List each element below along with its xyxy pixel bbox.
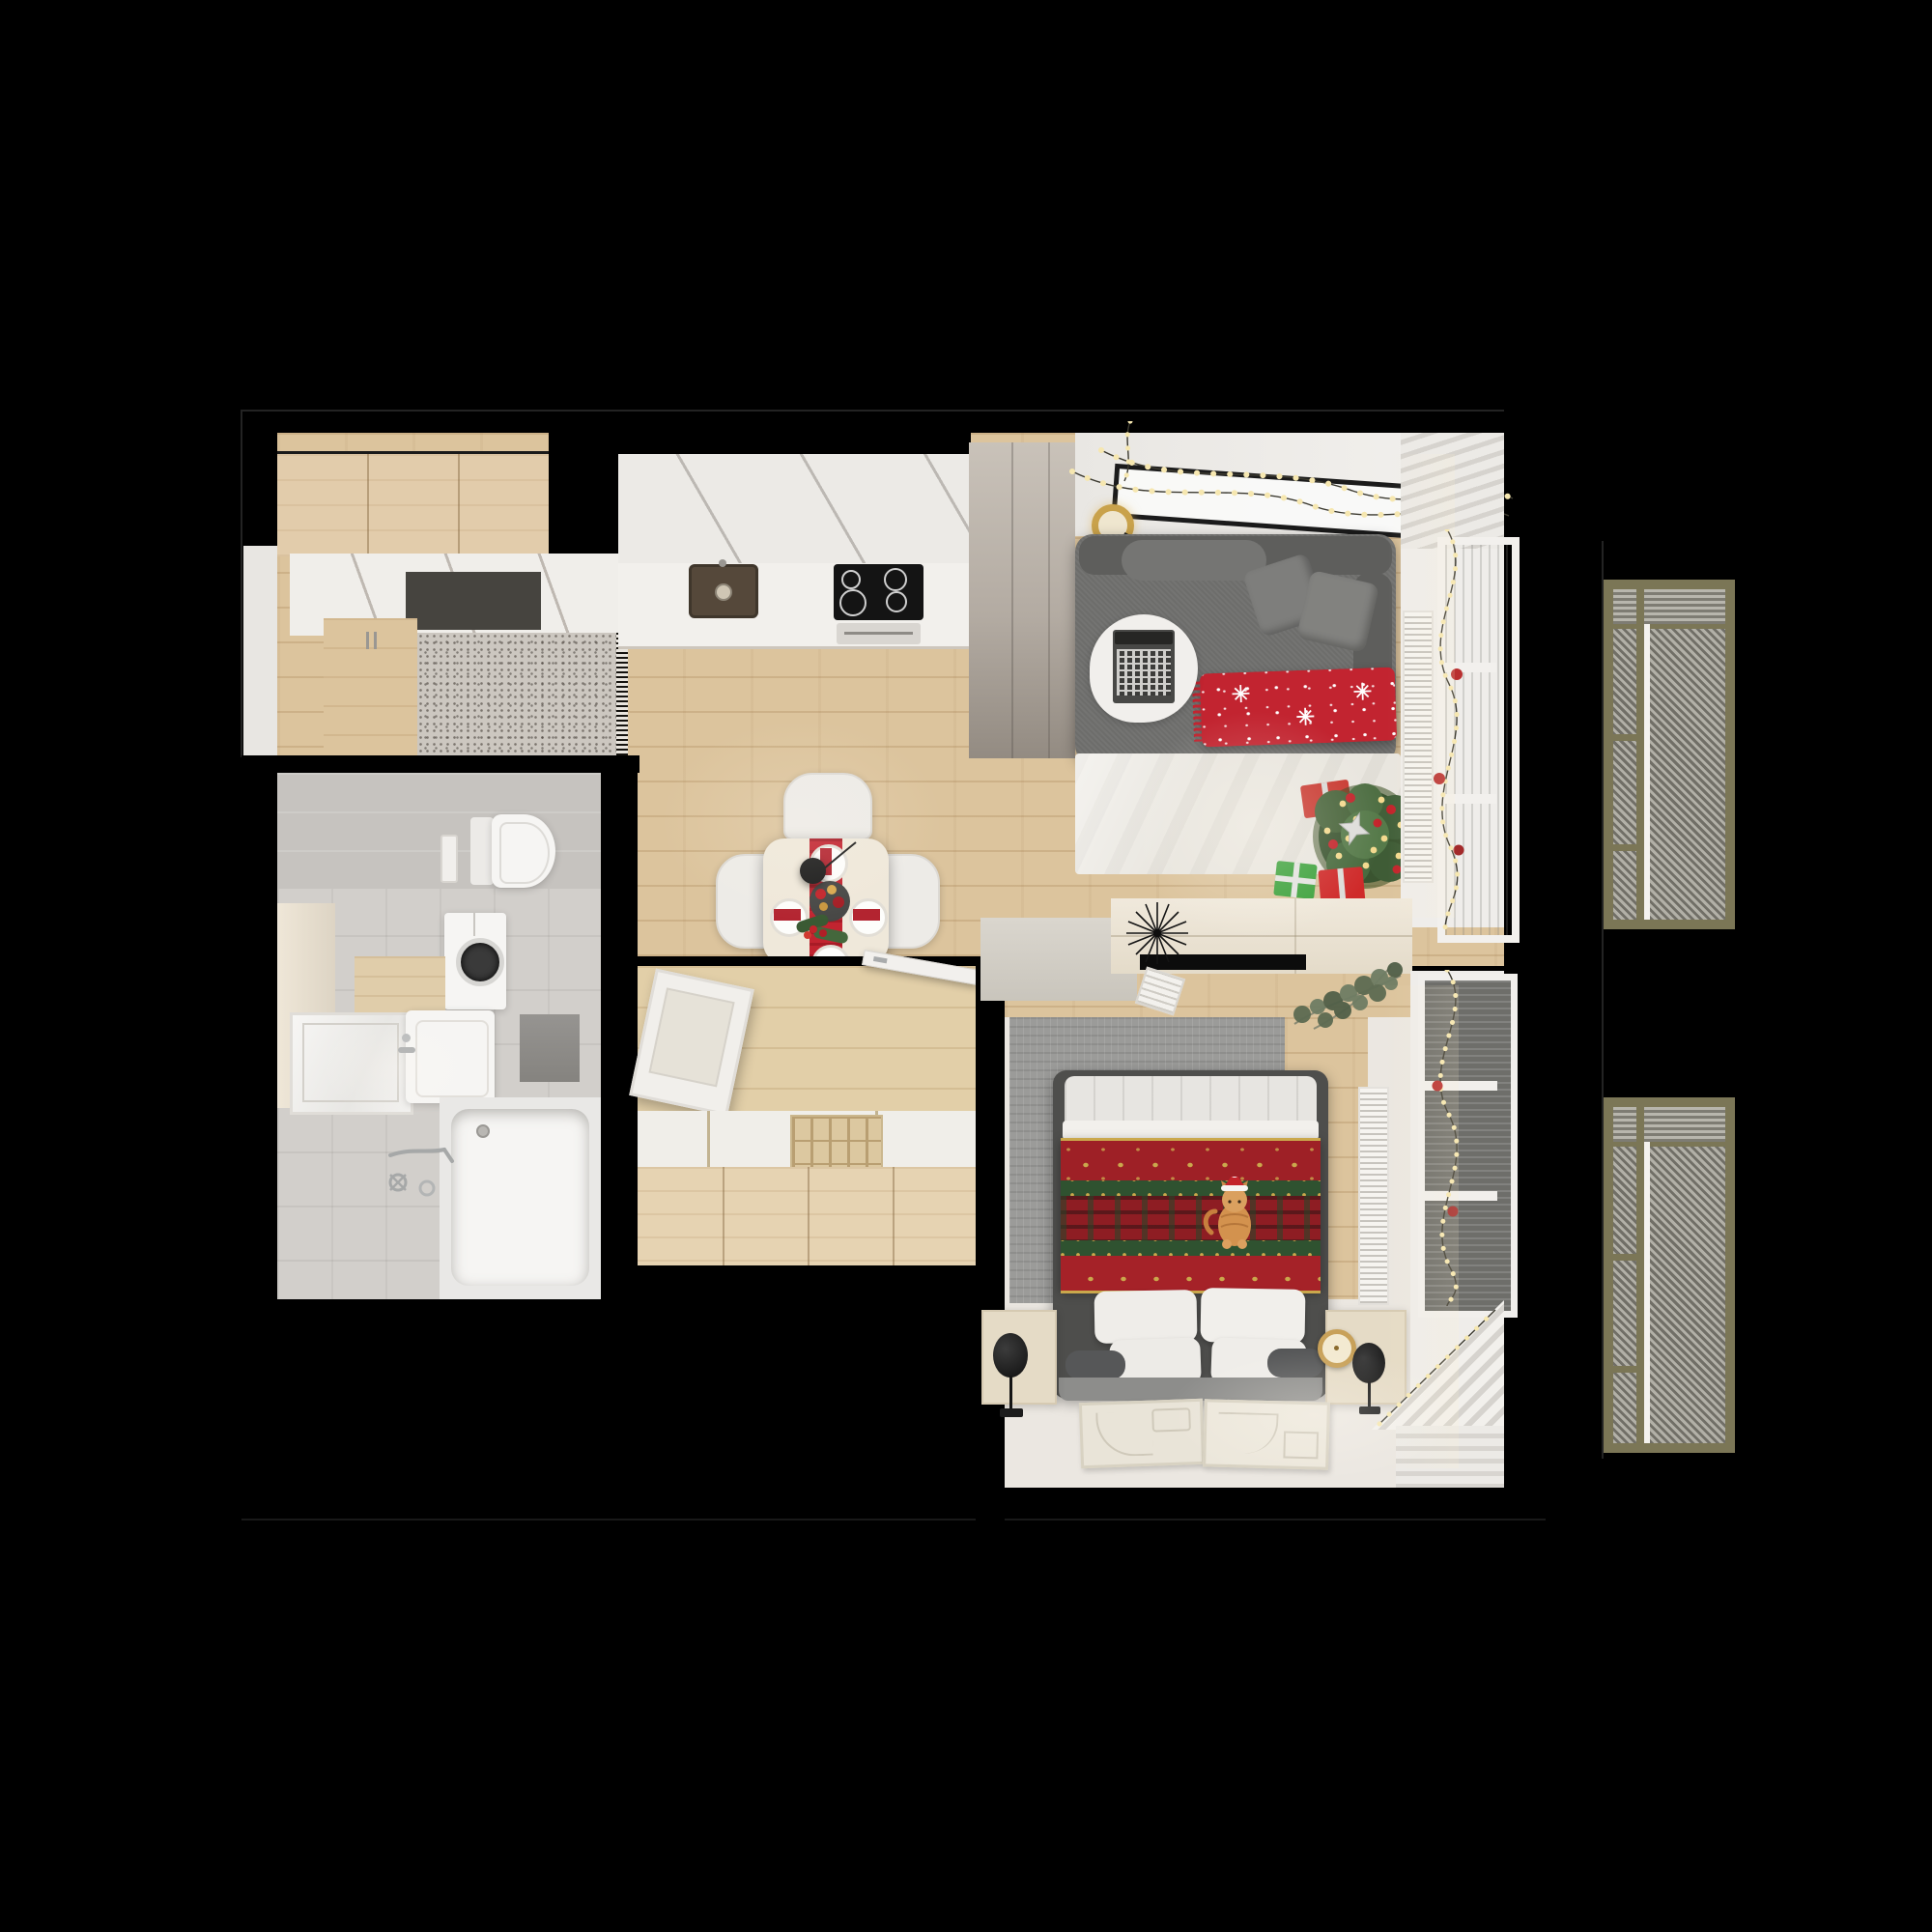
wall-outline-top <box>241 410 1504 412</box>
art-relief-line <box>1283 1431 1319 1459</box>
lamp-left-base <box>1000 1408 1023 1417</box>
eucalyptus-plant <box>1275 947 1420 1043</box>
kitchen-upper-cabinets <box>618 454 969 563</box>
panel-top-band <box>1613 1107 1725 1147</box>
towel-panel <box>520 1014 580 1082</box>
art-relief-line <box>1151 1407 1191 1432</box>
christmas-bedspread <box>1061 1138 1321 1291</box>
napkin-west <box>774 909 801 921</box>
bench-organizer-open <box>790 1115 883 1169</box>
burner <box>886 591 907 612</box>
washer-seam <box>473 913 475 936</box>
storage-bench-front <box>638 1167 976 1265</box>
panel-top-band <box>1613 589 1725 629</box>
wardrobe-door-seam <box>367 454 369 556</box>
panel-crossbar <box>1613 844 1644 851</box>
panel-crossbar <box>1613 734 1644 741</box>
storage-bench-top <box>638 1111 976 1167</box>
sink-drain <box>715 583 732 601</box>
laptop <box>1113 630 1175 703</box>
washer-drum <box>456 938 504 986</box>
apartment-floor-plan <box>0 0 1932 1932</box>
table-lamp-left <box>993 1333 1028 1378</box>
vanity-handle <box>402 1034 411 1042</box>
ornament-gold <box>819 902 828 911</box>
bench-front-seam <box>808 1167 810 1265</box>
burner <box>841 570 861 589</box>
laptop-keyboard <box>1117 649 1171 696</box>
cat-with-santa-hat <box>1198 1177 1265 1254</box>
bench-front-seam <box>723 1167 724 1265</box>
art-relief-line <box>1095 1411 1153 1458</box>
kitchen-tall-cabinet <box>969 442 1075 758</box>
bolster-pillow <box>1065 1350 1125 1379</box>
panel-mesh <box>1613 1107 1725 1443</box>
sink-faucet <box>719 559 726 567</box>
napkin-east <box>853 909 880 921</box>
vanity-faucet <box>398 1047 415 1053</box>
bathroom-tile-wall <box>277 773 601 889</box>
wall-bathroom-dressing <box>601 773 638 1299</box>
tall-cabinet-seam <box>1048 442 1050 758</box>
toilet-bowl <box>492 814 555 888</box>
wall-outline-bottom <box>241 1519 1546 1520</box>
ornament-red <box>833 896 844 908</box>
wall-entry-bathroom <box>241 755 639 773</box>
dining-chair-north <box>783 773 872 840</box>
tall-cabinet-seam <box>1011 442 1013 758</box>
bedspread-band-green <box>1061 1180 1321 1196</box>
bottom-curtain-band <box>1396 1426 1504 1488</box>
entry-wardrobe <box>277 451 549 556</box>
bench-front-seam <box>893 1167 895 1265</box>
kitchen-sink <box>689 564 758 618</box>
bedspread-band-snowflake-red2 <box>1061 1256 1321 1293</box>
panel-column-bar <box>1636 589 1644 920</box>
toilet-tank <box>470 817 494 885</box>
oven-front <box>837 623 921 644</box>
ornament-red <box>815 889 826 899</box>
entry-shoe-cabinet <box>324 618 417 755</box>
spiky-decor-star <box>1119 895 1196 972</box>
cabinet-mirror <box>648 987 734 1087</box>
floor-art-panel <box>1079 1399 1205 1468</box>
toilet-seat-line <box>499 822 550 884</box>
balcony-panel-lower <box>1604 1097 1735 1453</box>
panel-column-bar <box>1636 1107 1644 1443</box>
wardrobe-door-seam <box>458 454 460 556</box>
wall-gap-kitchen-top <box>618 433 971 456</box>
living-window-garland <box>1412 529 1505 931</box>
wall-outline-left <box>241 410 242 757</box>
vanity-basin <box>415 1020 489 1097</box>
panel-crossbar <box>1613 1366 1644 1373</box>
door-handle <box>873 956 888 963</box>
alarm-clock <box>1318 1329 1356 1368</box>
bath-wall-faucet <box>377 1111 483 1217</box>
panel-white-gap <box>1644 624 1650 920</box>
burner <box>884 568 907 591</box>
laptop-screen <box>1115 632 1173 644</box>
bedspread-band-green <box>1061 1240 1321 1256</box>
panel-white-gap <box>1644 1142 1650 1443</box>
floor-art-panel <box>1203 1399 1330 1469</box>
holly-berries <box>810 925 817 933</box>
bedroom-window-garland <box>1408 970 1505 1308</box>
bench-seam <box>707 1111 710 1167</box>
bed-pillow <box>1201 1288 1306 1344</box>
red-christmas-throw <box>1200 667 1398 747</box>
bedspread-band-snowflake-red <box>1061 1138 1321 1183</box>
lamp-left-stem <box>1009 1376 1012 1410</box>
entry-rug <box>417 633 616 755</box>
cabinet-handle <box>374 632 377 649</box>
gift-box-green <box>1273 861 1318 899</box>
wall-dressing-bedroom <box>976 956 1005 1531</box>
throw-snowflakes <box>1200 667 1398 747</box>
headboard <box>1059 1378 1322 1401</box>
bedroom-radiator <box>1358 1087 1389 1305</box>
corner-curtain-lights <box>1372 1300 1504 1430</box>
balcony-panel-upper <box>1604 580 1735 929</box>
burner <box>839 589 867 616</box>
pendant-lamp <box>800 858 826 884</box>
clock-center-dot <box>1334 1346 1339 1350</box>
washing-machine <box>444 913 506 1009</box>
entry-rug-fringe <box>616 633 628 755</box>
bed-duvet-fold <box>1063 1121 1319 1140</box>
cabinet-handle <box>366 632 369 649</box>
wall-gap-entry-kitchen <box>549 433 618 563</box>
bolster-pillow <box>1267 1349 1323 1378</box>
flush-plate <box>440 835 458 883</box>
art-relief-line <box>1217 1412 1278 1455</box>
entry-left-wall <box>243 546 277 755</box>
entry-doormat <box>406 572 541 630</box>
vanity-cabinet <box>406 1010 495 1103</box>
bed-pillow <box>1094 1290 1198 1344</box>
bathroom-shelf <box>355 956 445 1014</box>
bedspread-band-plaid <box>1061 1196 1321 1240</box>
panel-mesh <box>1613 589 1725 920</box>
panel-crossbar <box>1613 1254 1644 1261</box>
ornament-gold <box>827 885 837 895</box>
kitchen-cooktop <box>834 564 923 620</box>
bathroom-mirror <box>290 1012 413 1115</box>
mirror-frame-line <box>302 1023 399 1102</box>
oven-handle <box>844 632 913 635</box>
